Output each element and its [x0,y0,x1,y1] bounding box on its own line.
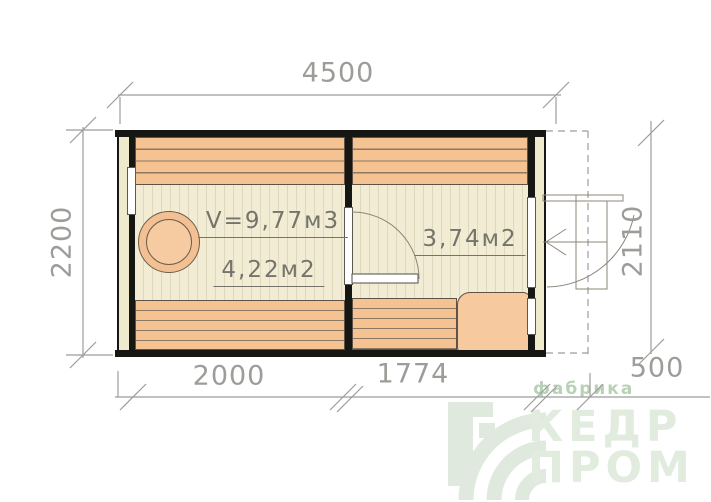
interior-door [352,212,419,283]
steam-room-area-label: 4,22м2 [213,258,324,287]
right-dimension-label: 2110 [620,205,647,278]
left-dimension-label: 2200 [49,206,76,279]
porch-depth-label: 500 [630,355,685,382]
top-dimension-label: 4500 [302,60,375,87]
steam-room-volume-label: V=9,77м3 [198,209,348,238]
floor-plan: фабрика КЕДР ПРОМ [0,0,711,502]
dressing-room-area-label: 3,74м2 [414,227,525,256]
room-right-width-label: 1774 [377,361,450,388]
entry-arrow-icon [546,229,566,242]
room-left-width-label: 2000 [193,363,266,390]
